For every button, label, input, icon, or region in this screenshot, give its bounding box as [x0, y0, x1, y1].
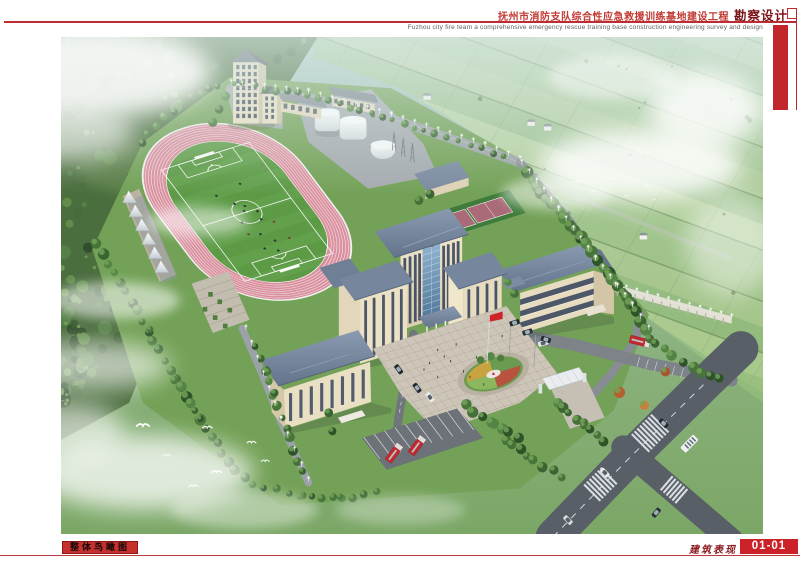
category-label: 建筑表现: [689, 541, 737, 556]
drawing-title: 整体鸟瞰图: [70, 543, 130, 552]
bottom-rule: [0, 555, 800, 556]
corner-thin-line: [796, 19, 797, 110]
project-subtitle-english: Fuzhou city fire team a comprehensive em…: [408, 24, 763, 31]
sheet-number-box: 01-01: [740, 539, 798, 554]
aerial-rendering-svg: [61, 37, 763, 534]
corner-red-bar: [773, 25, 788, 110]
presentation-sheet: 抚州市消防支队综合性应急救援训练基地建设工程勘察设计 Fuzhou city f…: [0, 0, 800, 566]
project-title-suffix: 勘察设计: [734, 9, 788, 23]
project-title: 抚州市消防支队综合性应急救援训练基地建设工程勘察设计: [498, 5, 788, 25]
corner-square-mark: [787, 8, 797, 19]
aerial-rendering: [61, 37, 763, 534]
drawing-title-box: 整体鸟瞰图: [62, 541, 138, 554]
project-title-text: 抚州市消防支队综合性应急救援训练基地建设工程: [498, 12, 729, 23]
sheet-number: 01-01: [752, 541, 786, 553]
